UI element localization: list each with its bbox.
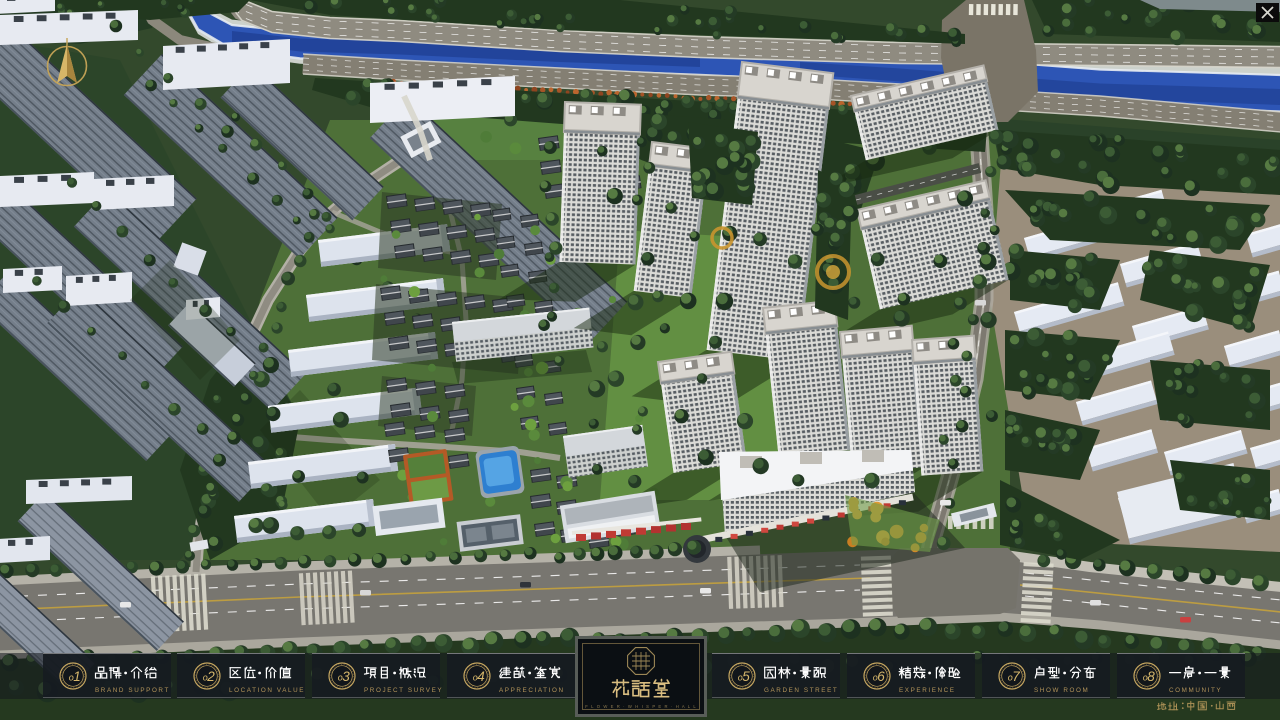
- svg-text:8: 8: [1147, 669, 1155, 684]
- svg-text:2: 2: [206, 669, 215, 684]
- svg-text:PROJECT SURVEY: PROJECT SURVEY: [364, 687, 443, 694]
- svg-text:4: 4: [477, 669, 485, 684]
- svg-text:SHOW ROOM: SHOW ROOM: [1034, 687, 1089, 694]
- svg-text:COMMUNITY: COMMUNITY: [1169, 687, 1222, 694]
- svg-text:APPRECIATION: APPRECIATION: [499, 687, 565, 694]
- svg-text:GARDEN STREET: GARDEN STREET: [764, 687, 838, 694]
- svg-text:EXPERIENCE: EXPERIENCE: [899, 687, 956, 694]
- svg-text:5: 5: [742, 669, 750, 684]
- svg-text:7: 7: [1012, 669, 1020, 684]
- svg-text:BRAND SUPPORT: BRAND SUPPORT: [95, 687, 170, 694]
- svg-text:F L O W E R · W H I S P E R ·: F L O W E R · W H I S P E R · H A L L: [585, 704, 697, 709]
- svg-text:LOCATION VALUE: LOCATION VALUE: [229, 687, 305, 694]
- svg-text:6: 6: [877, 669, 885, 684]
- svg-text:3: 3: [342, 669, 350, 684]
- svg-text:1: 1: [73, 669, 81, 684]
